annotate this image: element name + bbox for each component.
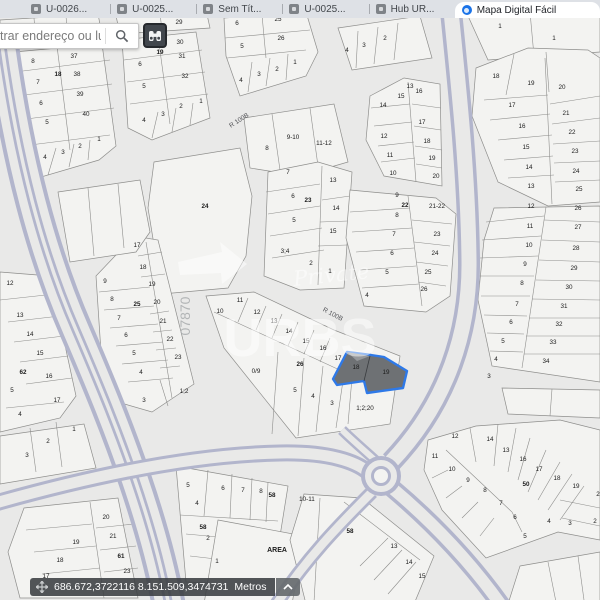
lot-label: 17 xyxy=(535,466,543,473)
lot-label: 5 xyxy=(385,269,389,276)
lot-label: 29 xyxy=(175,19,183,26)
lot-label: 19 xyxy=(148,281,156,288)
lot-label: 7 xyxy=(286,169,290,176)
collapse-chevron-icon xyxy=(282,583,294,591)
lot-label: 1 xyxy=(97,136,101,143)
lot-label: 3 xyxy=(257,71,261,78)
lot-label: 40 xyxy=(82,111,90,118)
lot-label: 6 xyxy=(513,514,517,521)
lot-label: 39 xyxy=(76,91,84,98)
lot-label: 13 xyxy=(390,543,398,550)
block-label: 19 xyxy=(156,49,164,56)
lot-label: 3 xyxy=(362,42,366,49)
search-button[interactable] xyxy=(106,24,138,48)
lot-label: 14 xyxy=(525,164,533,171)
lot-label: 9-10 xyxy=(287,134,300,141)
lot-label: 20 xyxy=(102,514,110,521)
lot-label: 0/9 xyxy=(252,368,261,375)
lot-label: 31 xyxy=(178,53,186,60)
tab-title: Hub UR... xyxy=(391,4,435,15)
lot-label: 4 xyxy=(311,393,315,400)
lot-label: 4 xyxy=(139,369,143,376)
tab-title: U-0025... xyxy=(132,4,173,15)
block-label: 24 xyxy=(201,203,209,210)
lot-label: 1 xyxy=(215,558,219,565)
lot-label: 19 xyxy=(428,155,436,162)
lot-label: 8 xyxy=(31,58,35,65)
tab-5[interactable]: Mapa Digital Fácil xyxy=(455,2,600,18)
lot-label: 15 xyxy=(522,144,530,151)
tab-favicon xyxy=(203,4,213,14)
lot-label: 8 xyxy=(265,145,269,152)
lot-label: 1 xyxy=(552,35,556,42)
lot-label: 1 xyxy=(293,59,297,66)
lot-label: 20 xyxy=(432,173,440,180)
lot-label: 16 xyxy=(518,123,526,130)
lot-label: 3 xyxy=(142,397,146,404)
tab-favicon xyxy=(462,5,472,15)
lot-label: 10 xyxy=(448,466,456,473)
lot-label: 17 xyxy=(133,242,141,249)
search-widget xyxy=(0,23,167,49)
lot-label: 3 xyxy=(161,111,165,118)
lot-label: 7 xyxy=(499,500,503,507)
lot-label: 5 xyxy=(501,338,505,345)
lot-label: 8 xyxy=(395,212,399,219)
lot-label: 4 xyxy=(142,117,146,124)
lot-label: 7 xyxy=(36,79,40,86)
lot-label: 5 xyxy=(10,387,14,394)
lot-label: 11 xyxy=(387,152,394,159)
lot-label: 4 xyxy=(43,154,47,161)
lot-label: 2 xyxy=(383,35,387,42)
lot-label: 4 xyxy=(345,47,349,54)
roundabout-island xyxy=(373,468,390,485)
lot-label: 16 xyxy=(415,88,423,95)
lot-label: 8 xyxy=(259,488,263,495)
block-label: 25 xyxy=(133,301,141,308)
tab-title: U-0026... xyxy=(46,4,87,15)
lot-label: 12 xyxy=(527,203,535,210)
lot-label: 19 xyxy=(72,539,80,546)
block-label: 61 xyxy=(117,553,125,560)
lot-label: 15 xyxy=(329,228,337,235)
lot-label: 2 xyxy=(275,66,279,73)
coordinate-readout: 686.672,3722116 8.151.509,3474731 Metros xyxy=(30,578,275,596)
lot-label: 13 xyxy=(406,83,414,90)
lot-label: 8 xyxy=(483,487,487,494)
tab-bar: U-0026...U-0025...Sem Tít...U-0025...Hub… xyxy=(0,0,600,18)
lot-label: 21 xyxy=(109,533,117,540)
collapse-button[interactable] xyxy=(276,578,300,596)
tab-2[interactable]: Sem Tít... xyxy=(196,0,282,18)
lot-label: 3 xyxy=(487,373,491,380)
lot-label: 8 xyxy=(110,296,114,303)
block-label: 22 xyxy=(401,202,409,209)
block-label: 23 xyxy=(304,197,312,204)
block-label: 58 xyxy=(268,492,276,499)
lot-label: 37 xyxy=(70,53,78,60)
tab-favicon xyxy=(289,4,299,14)
lot-label: 14 xyxy=(405,559,413,566)
lot-label: 18 xyxy=(56,557,64,564)
search-input[interactable] xyxy=(0,26,105,46)
lot-label: 16 xyxy=(519,456,527,463)
lot-label: 32 xyxy=(555,321,563,328)
lot-label: 2 xyxy=(593,518,597,525)
lot-label: 29 xyxy=(570,265,578,272)
lot-label: 9 xyxy=(523,261,527,268)
block-label: 18 xyxy=(54,71,62,78)
lot-label: 13 xyxy=(502,447,510,454)
block-label: URBS xyxy=(223,308,376,368)
lot-label: 14 xyxy=(26,331,34,338)
lot-label: 22 xyxy=(166,336,174,343)
lot-label: 21 xyxy=(159,318,167,325)
lot-label: 5 xyxy=(186,482,190,489)
tab-favicon xyxy=(117,4,127,14)
parcel-block xyxy=(58,180,150,262)
lot-label: 1 xyxy=(72,426,76,433)
binoculars-button[interactable] xyxy=(143,23,167,48)
lot-label: 3;4 xyxy=(281,248,290,255)
tab-0[interactable]: U-0026... xyxy=(24,0,110,18)
lot-label: 19 xyxy=(572,483,580,490)
tab-favicon xyxy=(376,4,386,14)
lot-label: 25 xyxy=(575,186,583,193)
tab-title: Sem Tít... xyxy=(218,4,261,15)
lot-label: 9 xyxy=(395,192,399,199)
lot-label: 07870 xyxy=(177,296,193,335)
lot-label: 12 xyxy=(451,433,459,440)
lot-label: 15 xyxy=(36,350,44,357)
lot-label: 15 xyxy=(418,573,426,580)
lot-label: 12 xyxy=(380,133,388,140)
lot-label: 23 xyxy=(571,148,579,155)
lot-label: 19 xyxy=(527,80,535,87)
coordinates-value: 686.672,3722116 8.151.509,3474731 xyxy=(54,581,228,593)
lot-label: 1 xyxy=(498,23,502,30)
lot-label: 5 xyxy=(292,217,296,224)
lot-label: 4 xyxy=(494,356,498,363)
lot-label: 24 xyxy=(572,168,580,175)
lot-label: 23 xyxy=(123,568,131,575)
lot-label: 11 xyxy=(432,453,439,460)
lot-label: 25 xyxy=(424,269,432,276)
lot-label: 6 xyxy=(39,100,43,107)
lot-label: 26 xyxy=(574,205,582,212)
lot-label: 9 xyxy=(466,477,470,484)
lot-label: 34 xyxy=(542,358,550,365)
tab-title: Mapa Digital Fácil xyxy=(477,5,556,16)
lot-label: 16 xyxy=(45,373,53,380)
block-label: 62 xyxy=(19,369,27,376)
lot-label: 1 xyxy=(199,98,203,105)
lot-label: 24 xyxy=(431,250,439,257)
lot-label: 3 xyxy=(330,400,334,407)
lot-label: 2 xyxy=(78,143,82,150)
lot-label: 22 xyxy=(568,129,576,136)
lot-label: 3 xyxy=(568,520,572,527)
lot-label: 30 xyxy=(176,39,184,46)
lot-label: 32 xyxy=(181,73,189,80)
lot-label: 4 xyxy=(195,500,199,507)
lot-label: 5 xyxy=(293,387,297,394)
lot-label: 2 xyxy=(179,103,183,110)
lot-label: 8 xyxy=(520,280,524,287)
lot-label: 14 xyxy=(379,102,387,109)
lot-label: 5 xyxy=(142,83,146,90)
lot-label: 6 xyxy=(221,485,225,492)
lot-label: 6 xyxy=(138,61,142,68)
lot-label: 3 xyxy=(25,452,29,459)
lot-label: 14 xyxy=(332,205,340,212)
lot-label: 6 xyxy=(291,193,295,200)
lot-label: 26 xyxy=(277,35,285,42)
lot-label: 4 xyxy=(365,292,369,299)
lot-label: 4 xyxy=(18,411,22,418)
lot-label: 14 xyxy=(486,436,494,443)
lot-label: 30 xyxy=(565,284,573,291)
lot-label: 5 xyxy=(45,119,49,126)
binoculars-icon xyxy=(148,29,162,43)
lot-label: 18 xyxy=(139,264,147,271)
lot-label: 11 xyxy=(237,297,244,304)
block-label: 58 xyxy=(199,524,207,531)
lot-label: 20 xyxy=(153,299,161,306)
lot-label: 18 xyxy=(492,73,500,80)
lot-label: 5 xyxy=(523,533,527,540)
lot-label: 11 xyxy=(527,223,534,230)
tab-favicon xyxy=(31,4,41,14)
lot-label: 2 xyxy=(206,535,210,542)
tab-1[interactable]: U-0025... xyxy=(110,0,196,18)
lot-label: 2 xyxy=(46,438,50,445)
lot-label: 38 xyxy=(73,71,81,78)
lot-label: 6 xyxy=(124,332,128,339)
block-label: 58 xyxy=(346,528,354,535)
tab-4[interactable]: Hub UR... xyxy=(369,0,455,18)
lot-label: 28 xyxy=(572,245,580,252)
lot-label: 12 xyxy=(6,280,14,287)
lot-label: 23 xyxy=(174,354,182,361)
lot-label: 7 xyxy=(515,301,519,308)
lot-label: 13 xyxy=(16,312,24,319)
lot-label: 7 xyxy=(392,231,396,238)
coordinate-status-bar: 686.672,3722116 8.151.509,3474731 Metros xyxy=(30,578,300,596)
lot-label: 21 xyxy=(562,110,570,117)
lot-label: 4 xyxy=(547,518,551,525)
lot-label: 17 xyxy=(53,397,61,404)
lot-label: 17 xyxy=(508,102,516,109)
lot-label: 26 xyxy=(420,286,428,293)
lot-label: 5 xyxy=(240,43,244,50)
lot-label: 11-12 xyxy=(316,140,332,147)
lot-label: 13 xyxy=(329,177,337,184)
block-label: AREA xyxy=(267,547,287,554)
block-label: 50 xyxy=(522,481,530,488)
lot-label: 6 xyxy=(390,250,394,257)
lot-label: 15 xyxy=(397,93,405,100)
lot-label: 10 xyxy=(389,170,397,177)
tab-3[interactable]: U-0025... xyxy=(282,0,368,18)
lot-label: 10-11 xyxy=(299,496,315,503)
lot-label: 2 xyxy=(596,491,600,498)
lot-label: 7 xyxy=(117,315,121,322)
search-box xyxy=(0,23,139,49)
lot-label: 9 xyxy=(103,278,107,285)
lot-label: 10 xyxy=(525,242,533,249)
lot-label: 18 xyxy=(423,138,431,145)
lot-label: 3 xyxy=(61,149,65,156)
lot-label: 23 xyxy=(433,231,441,238)
lot-label: 13 xyxy=(527,183,535,190)
lot-label: 6 xyxy=(235,20,239,27)
lot-label: 18 xyxy=(553,475,561,482)
map-canvas[interactable]: 8371838739640543212930193163254321625526… xyxy=(0,0,600,600)
lot-label: 4 xyxy=(239,77,243,84)
lot-label: 17 xyxy=(418,119,426,126)
app-window: 8371838739640543212930193163254321625526… xyxy=(0,0,600,600)
pan-icon xyxy=(36,581,48,593)
lot-label: 19 xyxy=(382,369,390,376)
lot-label: 5 xyxy=(132,350,136,357)
lot-label: 1;2 xyxy=(180,388,189,395)
lot-label: 21-22 xyxy=(429,203,446,210)
lot-label: 20 xyxy=(558,84,566,91)
coordinates-units: Metros xyxy=(234,581,266,593)
lot-label: 33 xyxy=(549,339,557,346)
lot-label: 27 xyxy=(574,224,582,231)
lot-label: 7 xyxy=(241,487,245,494)
magnifier-icon xyxy=(115,29,129,43)
lot-label: 6 xyxy=(509,319,513,326)
tab-title: U-0025... xyxy=(304,4,345,15)
lot-label: 1;2;20 xyxy=(356,405,374,412)
lot-label: 31 xyxy=(560,303,568,310)
